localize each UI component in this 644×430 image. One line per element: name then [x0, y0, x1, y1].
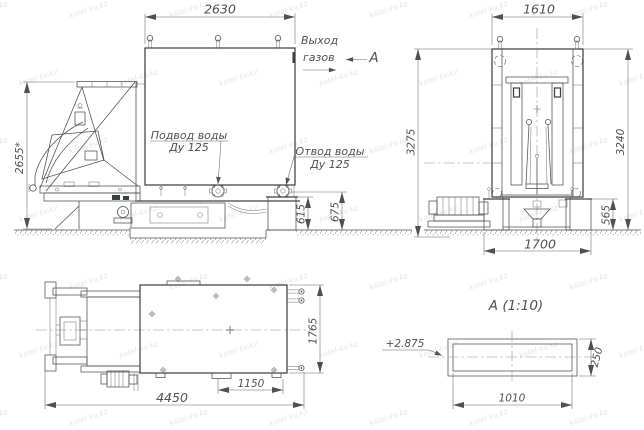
dim-width-1610: 1610 — [523, 2, 555, 17]
dim-width-1765: 1765 — [308, 317, 320, 344]
hydraulic-cylinder — [75, 112, 85, 125]
watermark-text: kotel-kv.kz — [68, 271, 110, 292]
watermark-text: kotel-kv.kz — [218, 67, 260, 88]
dim-width-1700: 1700 — [524, 237, 556, 252]
dim-height-2655: 2655* — [14, 142, 26, 174]
lifting-eyebolt — [275, 35, 281, 48]
base-and-pit — [14, 185, 412, 244]
bolt — [244, 276, 250, 282]
feeder-plan — [45, 282, 140, 391]
watermark-text: kotel-kv.kz — [618, 203, 644, 224]
watermark-text: kotel-kv.kz — [468, 407, 510, 428]
water-inlet-flange — [209, 185, 226, 197]
dim-width-2630: 2630 — [204, 2, 236, 17]
watermark-text: kotel-kv.kz — [118, 203, 160, 224]
brick-pedestal — [268, 197, 296, 230]
lifting-eyebolt — [147, 35, 153, 48]
dim-height-3275: 3275 — [406, 128, 418, 155]
gas-outlet-label-2: газов — [303, 51, 335, 64]
gas-outlet-label-1: Выход — [301, 34, 338, 47]
furnace-body — [137, 35, 296, 196]
detail-a-view: А (1:10) +2.875 1010 250 — [382, 298, 606, 409]
watermark-text: kotel-kv.kz — [518, 203, 560, 224]
dim-height-3240: 3240 — [615, 128, 627, 155]
watermark-text: kotel-kv.kz — [0, 407, 10, 428]
lifting-eyebolt — [215, 35, 221, 48]
svg-text:Отвод воды: Отвод воды — [296, 145, 365, 158]
watermark-text: kotel-kv.kz — [568, 135, 610, 156]
watermark-text: kotel-kv.kz — [268, 407, 310, 428]
watermark-text: kotel-kv.kz — [68, 0, 110, 20]
dim-1150: 1150 — [238, 378, 265, 390]
ground-hatch — [14, 230, 130, 236]
watermark-layer: kotel-kv.kzkotel-kv.kzkotel-kv.kzkotel-k… — [0, 0, 644, 428]
watermark-text: kotel-kv.kz — [618, 339, 644, 360]
watermark-text: kotel-kv.kz — [318, 339, 360, 360]
dim-width-1010: 1010 — [499, 393, 526, 405]
bolt — [271, 367, 277, 373]
plan-view: 4450 1150 1765 — [36, 276, 324, 409]
lifting-eyebolt — [574, 36, 580, 49]
dim-565: 565 — [601, 205, 613, 225]
pusher-block — [60, 317, 80, 345]
svg-text:Ду 125: Ду 125 — [168, 141, 209, 154]
section-label-a: А — [368, 50, 378, 66]
watermark-text: kotel-kv.kz — [568, 271, 610, 292]
watermark-text: kotel-kv.kz — [68, 135, 110, 156]
dim-675: 675 — [330, 202, 342, 222]
gas-outlet-stub — [293, 52, 296, 63]
bolt — [213, 293, 219, 299]
water-outlet-flange — [274, 185, 291, 197]
detail-title: А (1:10) — [488, 298, 543, 314]
water-outlet-callout: Отвод воды Ду 125 — [286, 145, 368, 185]
watermark-text: kotel-kv.kz — [0, 0, 10, 20]
lifting-eyebolt — [497, 36, 503, 49]
svg-text:Ду 125: Ду 125 — [309, 158, 350, 171]
watermark-text: kotel-kv.kz — [218, 339, 260, 360]
watermark-text: kotel-kv.kz — [568, 407, 610, 428]
feeder-motor — [101, 371, 138, 391]
watermark-text: kotel-kv.kz — [368, 271, 410, 292]
watermark-text: kotel-kv.kz — [468, 271, 510, 292]
dim-615: 615 — [296, 204, 308, 224]
watermark-text: kotel-kv.kz — [118, 67, 160, 88]
water-inlet-callout: Подвод воды Ду 125 — [150, 129, 228, 184]
drawing-sheet: kotel-kv.kzkotel-kv.kzkotel-kv.kzkotel-k… — [0, 0, 644, 430]
bolt — [149, 311, 155, 317]
assembly-drawing: kotel-kv.kzkotel-kv.kzkotel-kv.kzkotel-k… — [0, 0, 644, 430]
elevation-mark: +2.875 — [386, 338, 425, 350]
bolt — [160, 367, 166, 373]
ground-hatch — [424, 230, 641, 236]
watermark-text: kotel-kv.kz — [368, 135, 410, 156]
watermark-text: kotel-kv.kz — [118, 339, 160, 360]
drive-motor — [428, 197, 490, 227]
watermark-text: kotel-kv.kz — [18, 203, 60, 224]
watermark-text: kotel-kv.kz — [368, 0, 410, 20]
watermark-text: kotel-kv.kz — [418, 67, 460, 88]
watermark-text: kotel-kv.kz — [18, 67, 60, 88]
watermark-text: kotel-kv.kz — [368, 407, 410, 428]
watermark-text: kotel-kv.kz — [0, 271, 10, 292]
hydraulic-hose — [46, 128, 88, 183]
watermark-text: kotel-kv.kz — [68, 407, 110, 428]
dim-length-4450: 4450 — [156, 390, 188, 405]
watermark-text: kotel-kv.kz — [518, 339, 560, 360]
watermark-text: kotel-kv.kz — [218, 203, 260, 224]
watermark-text: kotel-kv.kz — [468, 135, 510, 156]
watermark-text: kotel-kv.kz — [618, 67, 644, 88]
watermark-text: kotel-kv.kz — [168, 407, 210, 428]
watermark-text: kotel-kv.kz — [0, 135, 10, 156]
